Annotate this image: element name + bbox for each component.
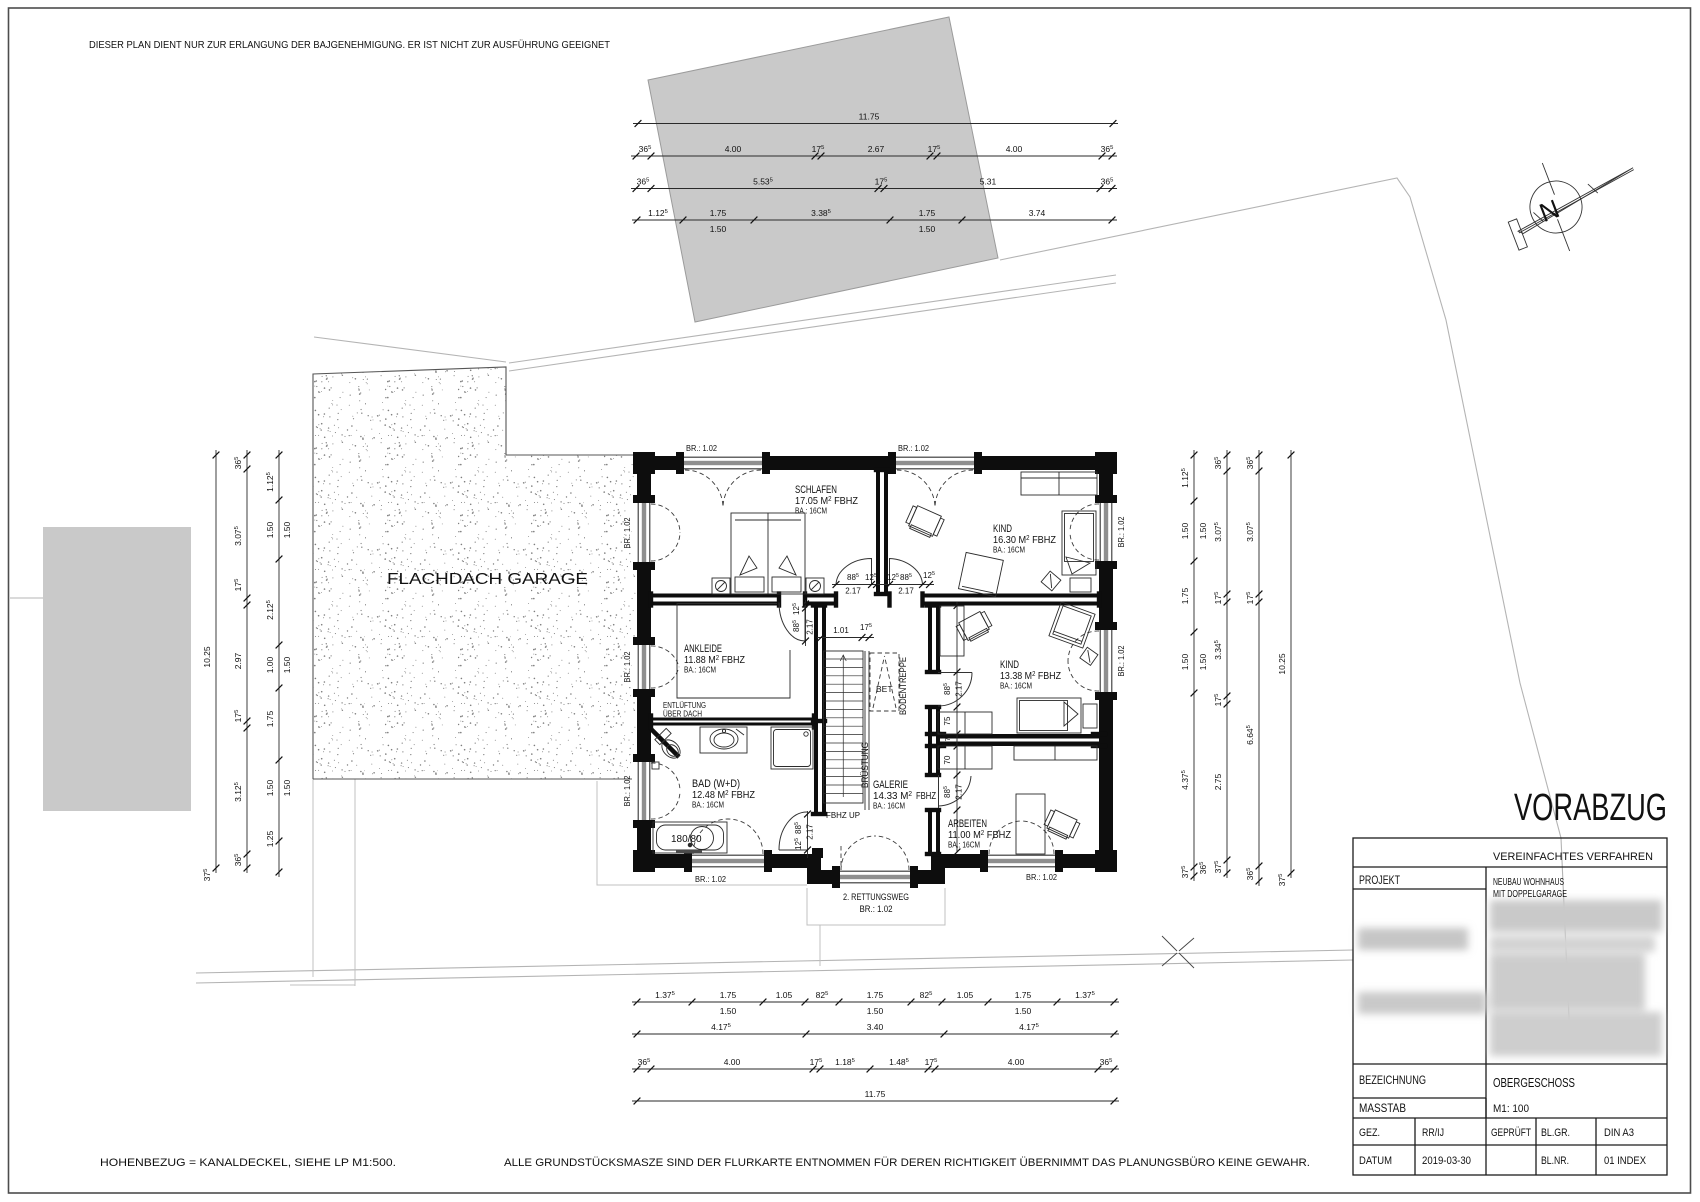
svg-text:2.67: 2.67 <box>868 144 885 154</box>
svg-text:RR/IJ: RR/IJ <box>1422 1127 1444 1139</box>
svg-text:VEREINFACHTES VERFAHREN: VEREINFACHTES VERFAHREN <box>1493 851 1653 863</box>
svg-text:2.17: 2.17 <box>806 824 815 840</box>
svg-text:1.75: 1.75 <box>265 710 275 727</box>
svg-text:BR.: 1.02: BR.: 1.02 <box>860 904 893 915</box>
svg-text:1.75: 1.75 <box>919 208 936 218</box>
svg-text:BR.: 1.02: BR.: 1.02 <box>1026 872 1057 882</box>
svg-text:BA.: 16CM: BA.: 16CM <box>1000 681 1032 691</box>
svg-text:180/80: 180/80 <box>671 834 702 845</box>
svg-text:2.97: 2.97 <box>233 652 243 669</box>
svg-text:1.50: 1.50 <box>1198 522 1208 539</box>
svg-text:BR.: 1.02: BR.: 1.02 <box>622 651 632 682</box>
svg-text:1.50: 1.50 <box>282 779 292 796</box>
svg-text:1.25: 1.25 <box>265 830 275 847</box>
svg-text:11.75: 11.75 <box>865 1089 886 1099</box>
svg-text:70: 70 <box>943 755 952 764</box>
svg-text:OBERGESCHOSS: OBERGESCHOSS <box>1493 1076 1575 1090</box>
svg-text:1.75: 1.75 <box>1180 587 1190 604</box>
svg-text:BA.: 16CM: BA.: 16CM <box>948 840 980 850</box>
svg-text:4.00: 4.00 <box>1006 144 1023 154</box>
svg-text:1.50: 1.50 <box>1180 522 1190 539</box>
svg-text:3.40: 3.40 <box>867 1022 884 1032</box>
svg-text:DIN A3: DIN A3 <box>1604 1127 1634 1139</box>
svg-text:BA.: 16CM: BA.: 16CM <box>795 506 827 516</box>
svg-text:1.50: 1.50 <box>1198 653 1208 670</box>
svg-text:1.50: 1.50 <box>1180 653 1190 670</box>
svg-text:2.17: 2.17 <box>955 784 964 800</box>
svg-text:2. RETTUNGSWEG: 2. RETTUNGSWEG <box>843 892 909 903</box>
svg-text:2.17: 2.17 <box>898 587 914 596</box>
svg-text:1.75: 1.75 <box>867 990 884 1000</box>
svg-text:1.50: 1.50 <box>265 779 275 796</box>
svg-text:BA.: 16CM: BA.: 16CM <box>993 545 1025 555</box>
svg-text:MASSTAB: MASSTAB <box>1359 1101 1406 1115</box>
svg-text:1.05: 1.05 <box>776 990 793 1000</box>
svg-text:1.75: 1.75 <box>720 990 737 1000</box>
svg-text:BR.: 1.02: BR.: 1.02 <box>1116 645 1126 676</box>
svg-text:BEZEICHNUNG: BEZEICHNUNG <box>1359 1073 1426 1087</box>
svg-text:BL.NR.: BL.NR. <box>1541 1155 1569 1167</box>
svg-text:2.17: 2.17 <box>955 681 964 697</box>
svg-text:DATUM: DATUM <box>1359 1155 1392 1167</box>
svg-text:2.75: 2.75 <box>1213 773 1223 790</box>
svg-text:BR.: 1.02: BR.: 1.02 <box>1116 516 1126 547</box>
svg-text:FBHZ UP: FBHZ UP <box>826 810 860 820</box>
svg-text:BA.: 16CM: BA.: 16CM <box>692 800 724 810</box>
svg-text:BR.: 1.02: BR.: 1.02 <box>622 775 632 806</box>
svg-text:4.00: 4.00 <box>725 144 742 154</box>
svg-text:1.50: 1.50 <box>867 1006 884 1016</box>
svg-text:1.50: 1.50 <box>919 224 936 234</box>
svg-text:1.75: 1.75 <box>710 208 727 218</box>
svg-text:BODENTREPPE: BODENTREPPE <box>898 657 908 715</box>
svg-text:NEUBAU WOHNHAUS: NEUBAU WOHNHAUS <box>1493 876 1564 888</box>
svg-text:GEPRÜFT: GEPRÜFT <box>1491 1127 1531 1139</box>
svg-text:BET: BET <box>876 684 893 694</box>
svg-text:1.50: 1.50 <box>710 224 727 234</box>
svg-text:1.50: 1.50 <box>265 521 275 538</box>
svg-text:BL.GR.: BL.GR. <box>1541 1127 1570 1139</box>
svg-text:GEZ.: GEZ. <box>1359 1127 1380 1139</box>
svg-text:M1: 100: M1: 100 <box>1493 1103 1529 1115</box>
svg-text:10.25: 10.25 <box>1277 653 1287 675</box>
svg-text:VORABZUG: VORABZUG <box>1514 787 1667 829</box>
svg-text:1.50: 1.50 <box>1015 1006 1032 1016</box>
svg-text:1.75: 1.75 <box>1015 990 1032 1000</box>
svg-text:FLACHDACH GARAGE: FLACHDACH GARAGE <box>387 571 588 588</box>
svg-text:ÜBER DACH: ÜBER DACH <box>663 709 702 719</box>
svg-text:4.00: 4.00 <box>1008 1057 1025 1067</box>
svg-text:1.50: 1.50 <box>282 521 292 538</box>
svg-text:10.25: 10.25 <box>202 646 212 668</box>
svg-text:3.74: 3.74 <box>1029 208 1046 218</box>
svg-text:4.00: 4.00 <box>724 1057 741 1067</box>
svg-text:1.05: 1.05 <box>957 990 974 1000</box>
svg-text:DIESER PLAN DIENT NUR ZUR ERLA: DIESER PLAN DIENT NUR ZUR ERLANGUNG DER … <box>89 39 611 51</box>
svg-text:BA.: 16CM: BA.: 16CM <box>873 801 905 811</box>
svg-text:BR.: 1.02: BR.: 1.02 <box>898 443 929 453</box>
svg-text:01 INDEX: 01 INDEX <box>1604 1155 1647 1167</box>
svg-text:BR.: 1.02: BR.: 1.02 <box>622 517 632 548</box>
svg-text:BR.: 1.02: BR.: 1.02 <box>686 443 717 453</box>
svg-text:1.00: 1.00 <box>265 656 275 673</box>
svg-text:5.31: 5.31 <box>980 177 997 187</box>
svg-text:1.50: 1.50 <box>282 656 292 673</box>
svg-text:2.17: 2.17 <box>806 619 815 635</box>
svg-text:2019-03-30: 2019-03-30 <box>1422 1155 1471 1167</box>
svg-text:11.75: 11.75 <box>859 112 880 122</box>
svg-text:ALLE GRUNDSTÜCKSMASZE SIND DER: ALLE GRUNDSTÜCKSMASZE SIND DER FLURKARTE… <box>504 1157 1310 1169</box>
svg-text:1.50: 1.50 <box>720 1006 737 1016</box>
svg-text:BR.: 1.02: BR.: 1.02 <box>695 874 726 884</box>
svg-text:75: 75 <box>943 716 952 725</box>
svg-text:PROJEKT: PROJEKT <box>1359 873 1400 887</box>
svg-text:1.01: 1.01 <box>833 626 849 635</box>
svg-text:HOHENBEZUG = KANALDECKEL, SIEH: HOHENBEZUG = KANALDECKEL, SIEHE LP M1:50… <box>100 1157 396 1169</box>
svg-text:BRÜSTUNG: BRÜSTUNG <box>860 742 870 788</box>
svg-text:BA.: 16CM: BA.: 16CM <box>684 665 716 675</box>
svg-text:FBHZ: FBHZ <box>916 790 936 802</box>
svg-text:2.17: 2.17 <box>845 587 861 596</box>
svg-text:MIT DOPPELGARAGE: MIT DOPPELGARAGE <box>1493 888 1567 900</box>
